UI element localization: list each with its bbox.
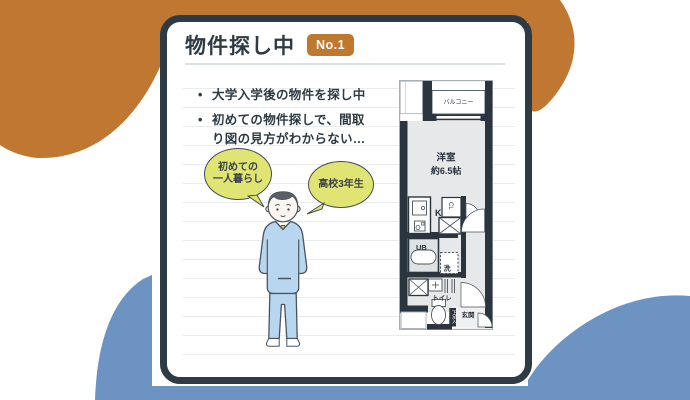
- closet-label: CL: [447, 202, 454, 210]
- kitchen-label: K: [435, 209, 442, 219]
- bullet-dot: •: [198, 86, 212, 105]
- bullet-dot: •: [198, 111, 212, 149]
- illustration-stage: 物件探し中 No.1 • 大学入学後の物件を探し中 • 初めての物件探しで、間取…: [0, 0, 690, 400]
- room-size-label: 約6.5帖: [407, 163, 485, 177]
- eye-left: [276, 208, 278, 210]
- corner-cell: [400, 81, 423, 114]
- unit-bath-label: UB: [416, 244, 427, 252]
- list-item: • 初めての物件探しで、間取り図の見方がわからない…: [198, 111, 368, 149]
- balcony-label: バルコニー: [432, 97, 485, 106]
- number-badge: No.1: [307, 34, 354, 56]
- toilet-bowl: [432, 306, 446, 325]
- list-item: • 大学入学後の物件を探し中: [198, 86, 368, 105]
- shoe-cabinet-label: 下足入: [450, 310, 457, 324]
- washer-label: 洗: [438, 262, 456, 273]
- shoe-right: [287, 339, 300, 347]
- eye-right: [287, 208, 289, 210]
- info-card: 物件探し中 No.1 • 大学入学後の物件を探し中 • 初めての物件探しで、間取…: [160, 15, 532, 384]
- person-illustration: [238, 188, 328, 353]
- entrance-label: 玄関: [457, 309, 479, 319]
- bubble-text: 初めての: [218, 162, 258, 174]
- toilet-label: トイレ: [429, 292, 455, 302]
- page-title: 物件探し中: [185, 30, 295, 60]
- sweater: [259, 222, 307, 294]
- service-box: [401, 312, 426, 329]
- bullet-list: • 大学入学後の物件を探し中 • 初めての物件探しで、間取り図の見方がわからない…: [198, 86, 368, 155]
- bullet-text: 大学入学後の物件を探し中: [212, 86, 368, 105]
- bullet-text: 初めての物件探しで、間取り図の見方がわからない…: [212, 111, 368, 149]
- pants: [269, 294, 297, 339]
- bubble-text: 一人暮らし: [213, 174, 263, 186]
- card-header: 物件探し中 No.1: [185, 30, 354, 60]
- floor-plan: バルコニー 洋室 約6.5帖 K CL UB 洗 トイレ 下足入 玄関: [399, 80, 493, 330]
- title-divider: [185, 63, 505, 65]
- shoe-left: [266, 339, 279, 347]
- room-name-label: 洋室: [407, 149, 485, 163]
